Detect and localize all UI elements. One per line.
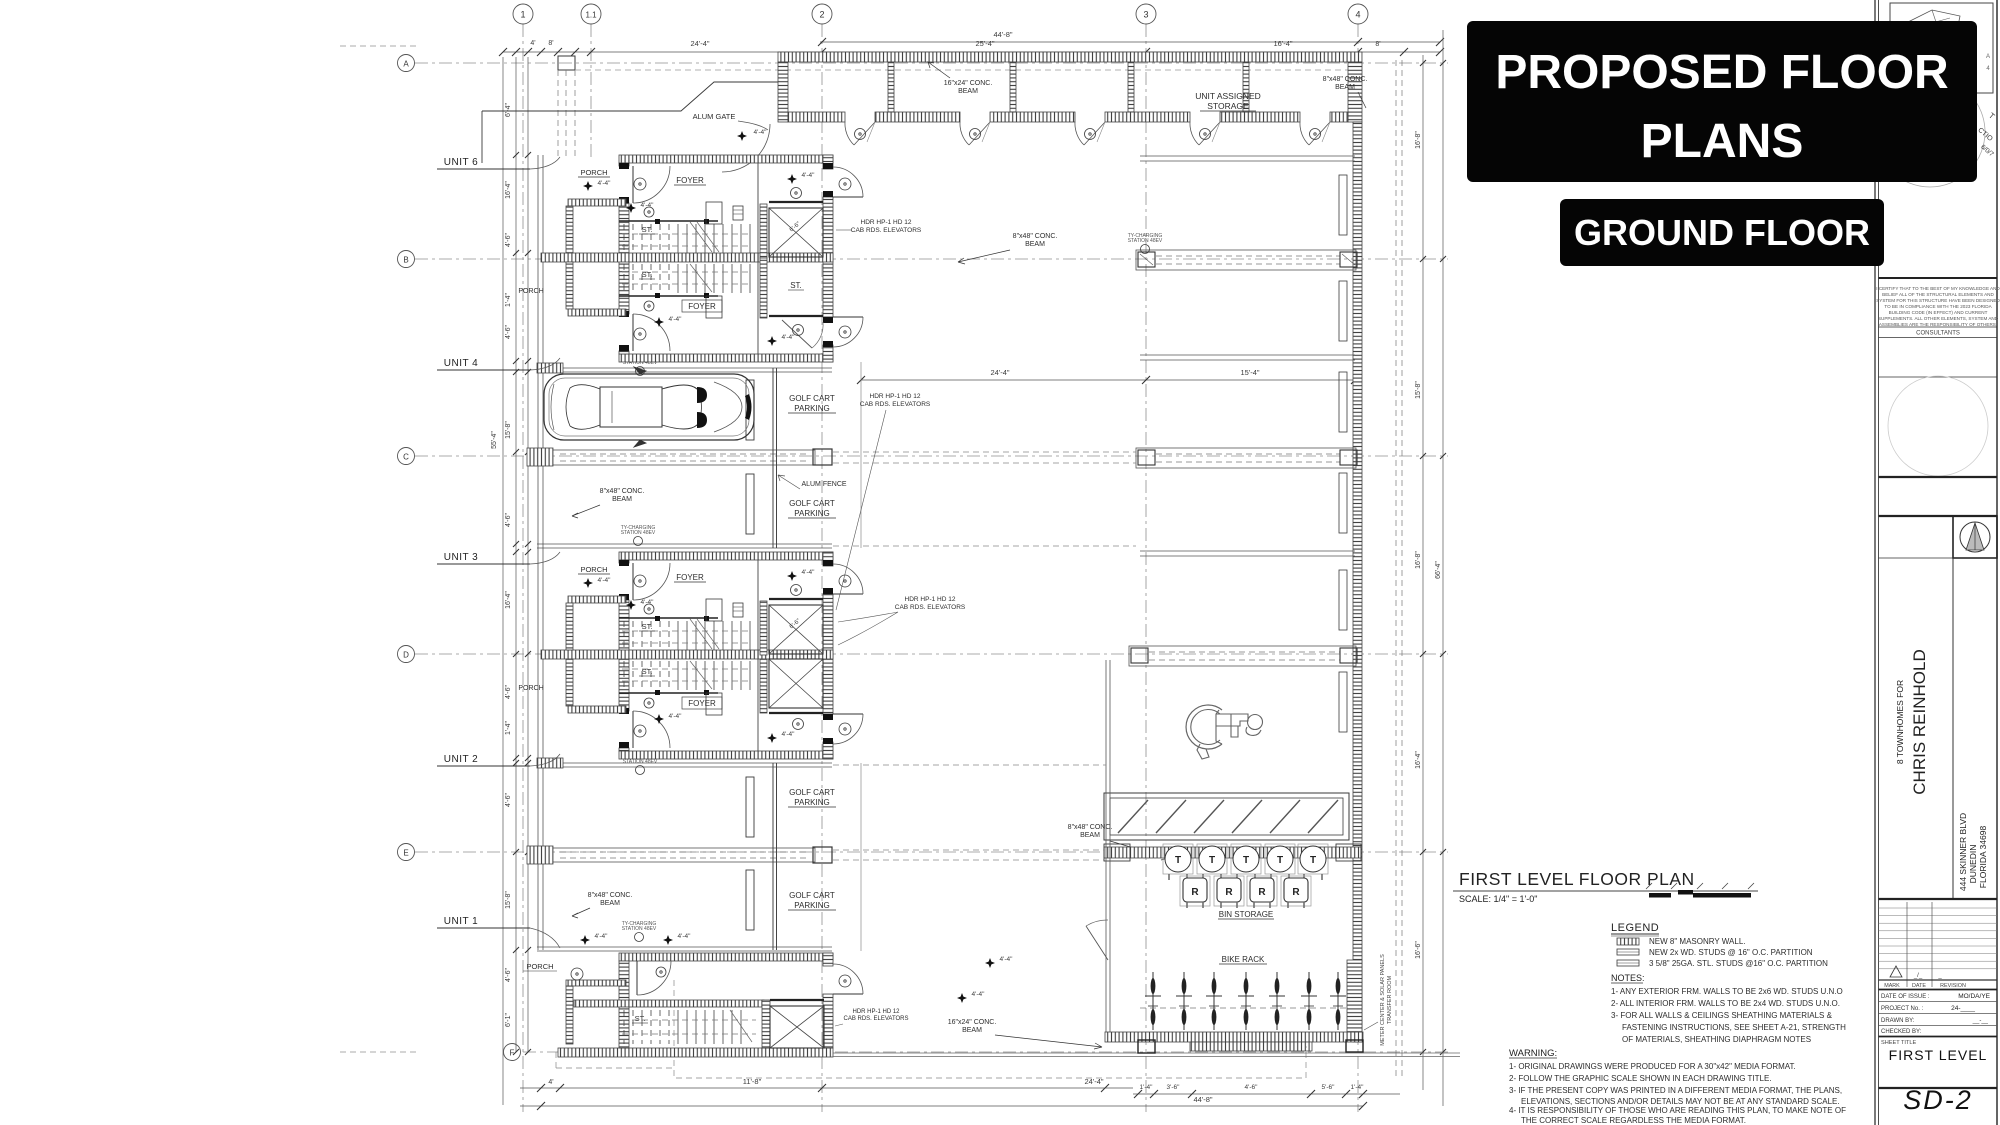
svg-text:UNIT 2: UNIT 2 <box>444 754 479 765</box>
svg-text:CHRIS REINHOLD: CHRIS REINHOLD <box>1910 649 1929 794</box>
svg-text:25'-4": 25'-4" <box>975 39 994 48</box>
svg-text:UNIT ASSIGNED: UNIT ASSIGNED <box>1195 91 1261 101</box>
svg-text:4': 4' <box>530 40 535 47</box>
svg-text:STATION 48EV: STATION 48EV <box>621 530 656 536</box>
svg-text:FIRST LEVEL: FIRST LEVEL <box>1889 1047 1988 1063</box>
svg-text:BUILDING CODE (IN EFFECT) AND: BUILDING CODE (IN EFFECT) AND CURRENT <box>1889 310 1988 315</box>
svg-text:4'-4": 4'-4" <box>802 569 816 576</box>
svg-text:8': 8' <box>1375 41 1380 48</box>
svg-text:BEAM: BEAM <box>1080 832 1100 839</box>
svg-text:UNIT 3: UNIT 3 <box>444 552 479 563</box>
svg-text:MARK: MARK <box>1884 983 1900 989</box>
svg-text:_: _ <box>1937 973 1942 979</box>
svg-text:4'-6": 4'-6" <box>505 513 512 527</box>
svg-text:1.1: 1.1 <box>585 11 597 20</box>
svg-text:TRANSFER ROOM: TRANSFER ROOM <box>1387 975 1393 1024</box>
svg-text:15'-4": 15'-4" <box>1240 368 1259 377</box>
svg-text:FOYER: FOYER <box>688 699 716 708</box>
svg-text:NEW 2x WD. STUDS @ 16" O.C. PA: NEW 2x WD. STUDS @ 16" O.C. PARTITION <box>1649 948 1813 957</box>
svg-text:BEAM: BEAM <box>962 1027 982 1034</box>
svg-text:HDR HP-1 HD 12: HDR HP-1 HD 12 <box>852 1009 900 1015</box>
svg-text:4'-4": 4'-4" <box>598 180 612 187</box>
svg-text:16'-4": 16'-4" <box>505 591 512 609</box>
svg-text:4'-6": 4'-6" <box>505 233 512 247</box>
svg-text:NEW 8" MASONRY WALL.: NEW 8" MASONRY WALL. <box>1649 937 1746 946</box>
svg-text:A: A <box>403 60 409 69</box>
svg-text:6'-4": 6'-4" <box>505 103 512 117</box>
svg-text:B: B <box>403 256 408 265</box>
svg-text:PORCH: PORCH <box>518 685 543 692</box>
svg-text:NOTES:: NOTES: <box>1611 973 1645 983</box>
svg-text:ALUM FENCE: ALUM FENCE <box>801 481 846 488</box>
svg-text:BIN STORAGE: BIN STORAGE <box>1219 910 1274 919</box>
svg-text:3- IF THE PRESENT COPY WAS PR: 3- IF THE PRESENT COPY WAS PRINTED IN A … <box>1509 1086 1842 1095</box>
svg-text:16"x24" CONC.: 16"x24" CONC. <box>944 80 993 87</box>
svg-text:E: E <box>403 849 408 858</box>
svg-text:4'-4": 4'-4" <box>678 933 692 940</box>
svg-text:D: D <box>403 651 409 660</box>
svg-text:4'-6": 4'-6" <box>505 325 512 339</box>
svg-text:FASTENING INSTRUCTIONS, SEE SH: FASTENING INSTRUCTIONS, SEE SHEET A-21, … <box>1622 1023 1846 1032</box>
svg-text:SCALE: 1/4" = 1'-0": SCALE: 1/4" = 1'-0" <box>1459 894 1537 904</box>
svg-text:BELIEF ALL OF THE STRUCTURAL E: BELIEF ALL OF THE STRUCTURAL ELEMENTS AN… <box>1882 292 1994 297</box>
svg-text:SYSTEM FOR THIS STRUCTURE HAVE: SYSTEM FOR THIS STRUCTURE HAVE BEEN DESI… <box>1876 298 2000 303</box>
svg-text:GOLF CART: GOLF CART <box>789 891 835 900</box>
svg-text:4'-4": 4'-4" <box>595 933 609 940</box>
svg-text:2: 2 <box>819 10 824 20</box>
svg-text:THE CORRECT SCALE REGARDLESS T: THE CORRECT SCALE REGARDLESS THE MEDIA F… <box>1521 1116 1746 1125</box>
svg-text:16'-8": 16'-8" <box>1415 551 1422 569</box>
svg-text:T: T <box>1277 855 1283 866</box>
svg-text:2- ALL INTERIOR FRM. WALLS TO: 2- ALL INTERIOR FRM. WALLS TO BE 2x4 WD.… <box>1611 999 1840 1008</box>
svg-text:ST.: ST. <box>642 225 653 234</box>
svg-text:GOLF CART: GOLF CART <box>789 394 835 403</box>
svg-text:PROPOSED FLOOR: PROPOSED FLOOR <box>1495 46 1948 99</box>
svg-text:PARKING: PARKING <box>794 798 829 807</box>
svg-text:REVISION: REVISION <box>1940 983 1966 989</box>
svg-text:4'-4": 4'-4" <box>1000 956 1014 963</box>
svg-text:PORCH: PORCH <box>580 168 607 177</box>
svg-text:ALUM GATE: ALUM GATE <box>693 112 736 121</box>
svg-text:4- IT IS RESPONSIBILITY OF TH: 4- IT IS RESPONSIBILITY OF THOSE WHO ARE… <box>1509 1106 1846 1115</box>
svg-text:SD-2: SD-2 <box>1903 1085 1973 1115</box>
svg-text:UNIT 1: UNIT 1 <box>444 916 479 927</box>
svg-text:3'-6": 3'-6" <box>1167 1084 1181 1091</box>
svg-text:4'-6": 4'-6" <box>505 968 512 982</box>
svg-text:15'-8": 15'-8" <box>1415 381 1422 399</box>
svg-text:PORCH: PORCH <box>518 288 543 295</box>
svg-text:__-__: __-__ <box>1972 1018 1989 1024</box>
svg-text:4'-4": 4'-4" <box>754 129 768 136</box>
svg-text:FOYER: FOYER <box>688 302 716 311</box>
svg-text:16'-8": 16'-8" <box>1415 131 1422 149</box>
svg-text:15'-8": 15'-8" <box>505 421 512 439</box>
svg-text:T: T <box>1209 855 1215 866</box>
svg-text:PARKING: PARKING <box>794 404 829 413</box>
svg-text:44'-8": 44'-8" <box>1193 1095 1212 1104</box>
svg-text:ST.: ST. <box>635 1014 646 1023</box>
svg-text:BEAM: BEAM <box>600 900 620 907</box>
svg-text:15'-8": 15'-8" <box>505 891 512 909</box>
svg-text:CAB RDS. ELEVATORS: CAB RDS. ELEVATORS <box>851 227 922 234</box>
svg-text:1: 1 <box>520 10 525 20</box>
svg-text:16'-4": 16'-4" <box>1273 39 1292 48</box>
svg-text:UNIT 4: UNIT 4 <box>444 358 479 369</box>
svg-text:PLANS: PLANS <box>1641 115 1804 168</box>
svg-text:ST.: ST. <box>790 281 802 290</box>
svg-text:1- ORIGINAL DRAWINGS WERE PRO: 1- ORIGINAL DRAWINGS WERE PRODUCED FOR A… <box>1509 1062 1796 1071</box>
svg-text:8"x48" CONC.: 8"x48" CONC. <box>600 488 645 495</box>
svg-text:4': 4' <box>548 1079 553 1086</box>
svg-text:3: 3 <box>1143 10 1148 20</box>
svg-text:C: C <box>403 453 409 462</box>
svg-text:1'-4": 1'-4" <box>505 721 512 735</box>
svg-text:4'-4": 4'-4" <box>802 172 816 179</box>
svg-text:ELEVATIONS, SECTIONS AND/OR DE: ELEVATIONS, SECTIONS AND/OR DETAILS MAY … <box>1521 1097 1840 1106</box>
svg-text:1- ANY EXTERIOR FRM. WALLS TO: 1- ANY EXTERIOR FRM. WALLS TO BE 2x6 WD.… <box>1611 987 1843 996</box>
svg-text:STATION 48EV: STATION 48EV <box>623 759 658 765</box>
svg-text:4'-4": 4'-4" <box>669 713 683 720</box>
svg-text:16"x24" CONC.: 16"x24" CONC. <box>948 1019 997 1026</box>
svg-text:6'-1": 6'-1" <box>505 1013 512 1027</box>
svg-text:MO/DA/YE: MO/DA/YE <box>1958 993 1990 1000</box>
svg-text:SHEET TITLE: SHEET TITLE <box>1881 1040 1917 1046</box>
svg-text:DRAWN BY:: DRAWN BY: <box>1881 1018 1915 1024</box>
svg-text:16'-6": 16'-6" <box>1415 941 1422 959</box>
svg-text:TO BE IN COMPLIANCE WITH THE 2: TO BE IN COMPLIANCE WITH THE 2023 FLORID… <box>1884 304 1992 309</box>
svg-text:A: A <box>1986 54 1990 60</box>
svg-text:BEAM: BEAM <box>1335 84 1355 91</box>
svg-text:DATE: DATE <box>1912 983 1926 989</box>
svg-text:CONSULTANTS: CONSULTANTS <box>1916 331 1960 337</box>
svg-text:16'-4": 16'-4" <box>1415 751 1422 769</box>
svg-text:GROUND FLOOR: GROUND FLOOR <box>1574 212 1870 253</box>
svg-text:4'-4": 4'-4" <box>669 316 683 323</box>
svg-text:STATION 48EV: STATION 48EV <box>1128 238 1163 244</box>
svg-text:8': 8' <box>548 40 553 47</box>
svg-text:4'-4": 4'-4" <box>782 731 796 738</box>
svg-text:R: R <box>1258 887 1266 898</box>
svg-text:4'-4": 4'-4" <box>782 334 796 341</box>
svg-text:SUPPLEMENTS. ALL OTHER ELEMENT: SUPPLEMENTS. ALL OTHER ELEMENTS, SYSTEM … <box>1878 316 1999 321</box>
svg-text:1'-4": 1'-4" <box>505 293 512 307</box>
svg-text:24-____: 24-____ <box>1951 1005 1975 1012</box>
svg-text:PORCH: PORCH <box>526 962 553 971</box>
svg-text:FIRST LEVEL FLOOR PLAN: FIRST LEVEL FLOOR PLAN <box>1459 869 1695 889</box>
svg-text:PARKING: PARKING <box>794 509 829 518</box>
svg-text:PROJECT No. :: PROJECT No. : <box>1881 1006 1924 1012</box>
svg-text:4'-6": 4'-6" <box>505 685 512 699</box>
svg-text:HDR HP-1 HD 12: HDR HP-1 HD 12 <box>861 219 912 226</box>
svg-text:24'-4": 24'-4" <box>990 368 1009 377</box>
svg-text:ST.: ST. <box>642 622 653 631</box>
svg-text:4'-4": 4'-4" <box>598 577 612 584</box>
svg-text:OF MATERIALS, SHEATHING DIAPHR: OF MATERIALS, SHEATHING DIAPHRAGM NOTES <box>1622 1035 1811 1044</box>
svg-text:BEAM: BEAM <box>1025 241 1045 248</box>
svg-text:CAB RDS. ELEVATORS: CAB RDS. ELEVATORS <box>895 604 966 611</box>
svg-text:8 TOWNHOMES FOR: 8 TOWNHOMES FOR <box>1895 680 1905 764</box>
svg-text:4: 4 <box>1355 10 1360 20</box>
svg-text:3 5/8" 25GA. STL. STUDS @16" O: 3 5/8" 25GA. STL. STUDS @16" O.C. PARTIT… <box>1649 959 1828 968</box>
svg-text:PARKING: PARKING <box>794 901 829 910</box>
svg-text:T: T <box>1243 855 1249 866</box>
svg-text:BEAM: BEAM <box>612 496 632 503</box>
svg-text:STATION 48EV: STATION 48EV <box>622 926 657 932</box>
svg-text:55'-4": 55'-4" <box>491 431 498 449</box>
svg-text:FOYER: FOYER <box>676 176 704 185</box>
svg-text:BIKE RACK: BIKE RACK <box>1222 955 1265 964</box>
svg-text:2- FOLLOW THE GRAPHIC SCALE S: 2- FOLLOW THE GRAPHIC SCALE SHOWN IN EAC… <box>1509 1074 1772 1083</box>
svg-text:PORCH: PORCH <box>580 565 607 574</box>
svg-text:24'-4": 24'-4" <box>690 39 709 48</box>
svg-text:CHECKED BY:: CHECKED BY: <box>1881 1029 1922 1035</box>
svg-text:FLORIDA 34698: FLORIDA 34698 <box>1978 826 1988 889</box>
svg-text:ST.: ST. <box>642 270 653 279</box>
svg-text:66'-4": 66'-4" <box>1435 561 1442 579</box>
svg-text:4'-4": 4'-4" <box>972 991 986 998</box>
svg-text:5'-6": 5'-6" <box>1322 1084 1336 1091</box>
svg-text:LEGEND: LEGEND <box>1611 922 1659 934</box>
svg-text:ASSEMBLIES ARE THE RESPONSIBIL: ASSEMBLIES ARE THE RESPONSIBILITY OF OTH… <box>1879 322 1997 327</box>
svg-text:UNIT 6: UNIT 6 <box>444 157 479 168</box>
svg-text:ST.: ST. <box>642 667 653 676</box>
svg-text:WARNING:: WARNING: <box>1509 1048 1557 1059</box>
svg-text:R: R <box>1292 887 1300 898</box>
svg-text:GOLF CART: GOLF CART <box>789 499 835 508</box>
svg-text:FOYER: FOYER <box>676 573 704 582</box>
svg-text:444 SKINNER BLVD: 444 SKINNER BLVD <box>1958 813 1968 891</box>
svg-text:1'-4": 1'-4" <box>1140 1084 1154 1091</box>
svg-text:F: F <box>510 1049 515 1058</box>
svg-text:CAB RDS. ELEVATORS: CAB RDS. ELEVATORS <box>860 401 931 408</box>
svg-text:8"x48" CONC.: 8"x48" CONC. <box>588 892 633 899</box>
svg-text:1'-4": 1'-4" <box>1351 1084 1365 1091</box>
svg-text:_/_: _/_ <box>1913 973 1923 979</box>
svg-text:I CERTIFY THAT TO THE BEST OF: I CERTIFY THAT TO THE BEST OF MY KNOWLED… <box>1876 286 2000 291</box>
svg-text:GOLF CART: GOLF CART <box>789 788 835 797</box>
svg-text:DATE OF ISSUE :: DATE OF ISSUE : <box>1881 994 1930 1000</box>
svg-text:4'-6": 4'-6" <box>1245 1084 1259 1091</box>
svg-text:HDR HP-1 HD 12: HDR HP-1 HD 12 <box>905 596 956 603</box>
svg-text:CAB RDS. ELEVATORS: CAB RDS. ELEVATORS <box>843 1016 908 1022</box>
svg-text:T: T <box>1175 855 1181 866</box>
svg-text:T: T <box>1310 855 1316 866</box>
svg-text:4'-6": 4'-6" <box>505 793 512 807</box>
svg-text:3- FOR ALL WALLS & CEILINGS S: 3- FOR ALL WALLS & CEILINGS SHEATHING MA… <box>1611 1011 1833 1020</box>
svg-text:METER CENTER & SOLAR PANELS: METER CENTER & SOLAR PANELS <box>1380 954 1386 1046</box>
svg-text:8"x48" CONC.: 8"x48" CONC. <box>1013 233 1058 240</box>
svg-text:16'-4": 16'-4" <box>505 181 512 199</box>
svg-text:HDR HP-1 HD 12: HDR HP-1 HD 12 <box>870 393 921 400</box>
svg-text:R: R <box>1191 887 1199 898</box>
svg-text:8"x48" CONC.: 8"x48" CONC. <box>1323 76 1368 83</box>
svg-text:R: R <box>1225 887 1233 898</box>
svg-text:DUNEDIN: DUNEDIN <box>1968 845 1978 884</box>
svg-text:BEAM: BEAM <box>958 88 978 95</box>
svg-text:44'-8": 44'-8" <box>993 30 1012 39</box>
svg-text:STORAGE: STORAGE <box>1207 101 1249 111</box>
